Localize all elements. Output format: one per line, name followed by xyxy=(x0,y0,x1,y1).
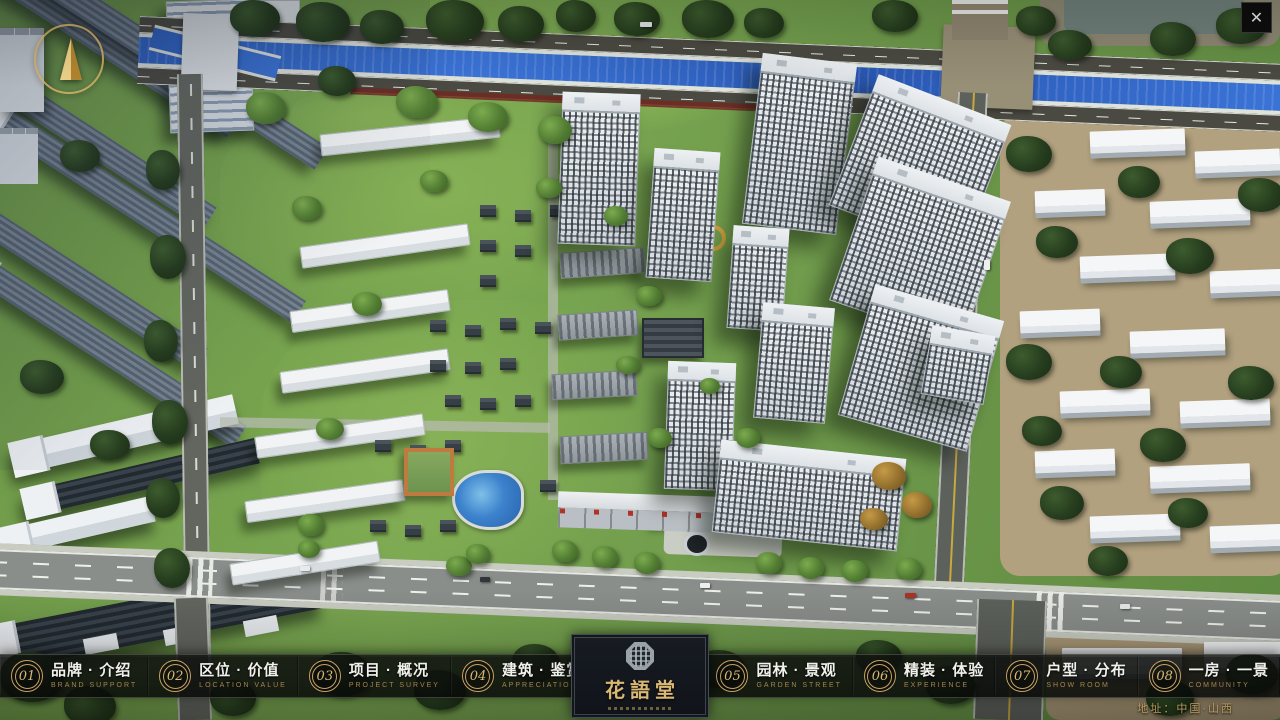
address-label: 地址：中国·山西 xyxy=(1137,700,1234,716)
tree-icon xyxy=(556,0,596,32)
apartment-slab xyxy=(1090,128,1186,153)
tree-icon xyxy=(616,356,640,374)
courtyard-house xyxy=(430,320,446,332)
nav-number-badge: 05 xyxy=(716,660,748,692)
courtyard-house xyxy=(540,480,556,492)
courtyard-house xyxy=(480,398,496,410)
car xyxy=(300,566,310,571)
nav-number: 03 xyxy=(312,664,337,689)
tree-icon xyxy=(744,8,784,38)
compass-north-icon xyxy=(34,24,104,94)
tree-icon xyxy=(1166,238,1214,274)
car xyxy=(1120,604,1130,609)
midrise-slab xyxy=(557,309,639,341)
apartment-slab xyxy=(1130,328,1226,353)
tree-icon xyxy=(552,540,578,562)
nav-number-badge: 02 xyxy=(159,660,191,692)
tree-icon xyxy=(318,66,356,96)
tree-icon xyxy=(352,292,382,316)
tree-icon xyxy=(1048,30,1092,60)
tree-icon xyxy=(902,492,932,518)
tree-icon xyxy=(298,540,320,558)
nav-number: 06 xyxy=(867,664,892,689)
courtyard-house xyxy=(465,325,481,337)
tree-icon xyxy=(842,560,868,582)
nav-number-badge: 06 xyxy=(864,660,896,692)
tree-icon xyxy=(872,462,906,490)
project-logo-name: 花語堂 xyxy=(600,674,680,703)
tree-icon xyxy=(154,548,190,588)
clubhouse-hall xyxy=(642,318,704,358)
nav-label-zh: 项目 · 概况 xyxy=(349,662,440,679)
nav-label-en: PROJECT SURVEY xyxy=(349,682,440,690)
courtyard-house xyxy=(480,205,496,217)
apartment-slab xyxy=(1090,513,1181,538)
logo-tagline-rule xyxy=(608,707,672,710)
nav-label-en: LOCATION VALUE xyxy=(199,682,287,690)
tree-icon xyxy=(1150,22,1196,56)
tree-icon xyxy=(682,0,734,38)
nav-number-badge: 03 xyxy=(309,660,341,692)
nav-item-interior-experience[interactable]: 06 精装 · 体验EXPERIENCE xyxy=(853,657,995,695)
tree-icon xyxy=(1238,178,1280,212)
nav-label-zh: 区位 · 价值 xyxy=(199,662,287,679)
tree-icon xyxy=(536,178,562,198)
tree-icon xyxy=(296,2,350,42)
seal-emblem-icon xyxy=(626,642,654,670)
nav-item-location-value[interactable]: 02 区位 · 价值LOCATION VALUE xyxy=(148,657,298,695)
tree-icon xyxy=(146,150,180,190)
logo-panel[interactable]: 花語堂 xyxy=(571,634,709,718)
courtyard-house xyxy=(535,322,551,334)
tree-icon xyxy=(736,428,760,448)
tree-icon xyxy=(150,235,186,279)
tree-icon xyxy=(1036,226,1078,258)
tree-icon xyxy=(468,102,508,132)
courtyard-house xyxy=(515,395,531,407)
tree-icon xyxy=(20,360,64,394)
courtyard-house xyxy=(430,360,446,372)
nav-number-badge: 08 xyxy=(1149,660,1181,692)
nav-label-en: GARDEN STREET xyxy=(756,682,842,690)
north-road xyxy=(952,0,1008,40)
car xyxy=(640,22,652,27)
nav-group-left: 01 品牌 · 介绍BRAND SUPPORT 02 区位 · 价值LOCATI… xyxy=(0,655,593,697)
tree-icon xyxy=(396,86,438,118)
nav-number-badge: 07 xyxy=(1006,660,1038,692)
nav-item-garden-landscape[interactable]: 05 园林 · 景观GARDEN STREET xyxy=(705,657,853,695)
nav-number: 08 xyxy=(1152,664,1177,689)
nav-label-zh: 品牌 · 介绍 xyxy=(51,662,137,679)
nav-label-zh: 一房 · 一景 xyxy=(1189,662,1269,679)
tree-icon xyxy=(1088,546,1128,576)
tree-icon xyxy=(426,0,484,42)
car xyxy=(700,583,710,588)
nav-number: 01 xyxy=(15,664,40,689)
tree-icon xyxy=(90,430,130,460)
tree-icon xyxy=(298,514,324,536)
nav-number: 05 xyxy=(720,664,745,689)
courtyard-house xyxy=(405,525,421,537)
courtyard-house xyxy=(480,275,496,287)
tree-icon xyxy=(144,320,178,362)
tree-icon xyxy=(538,116,572,144)
close-icon: ✕ xyxy=(1250,8,1263,28)
tree-icon xyxy=(636,286,662,306)
courtyard-house xyxy=(465,362,481,374)
pool xyxy=(452,470,524,530)
courtyard-house xyxy=(440,520,456,532)
masterplan-3d-scene[interactable] xyxy=(0,0,1280,720)
apartment-slab xyxy=(1180,398,1271,423)
nav-number: 02 xyxy=(163,664,188,689)
nav-number-badge: 01 xyxy=(11,660,43,692)
nav-item-room-view[interactable]: 08 一房 · 一景COMMUNITY xyxy=(1138,657,1280,695)
tree-icon xyxy=(1016,6,1056,36)
apartment-slab xyxy=(1020,309,1101,334)
tree-icon xyxy=(316,418,344,440)
tree-icon xyxy=(634,552,660,574)
tree-icon xyxy=(872,0,918,32)
apartment-slab xyxy=(1150,198,1251,223)
tree-icon xyxy=(466,544,490,564)
tree-icon xyxy=(1168,498,1208,528)
tree-icon xyxy=(1140,428,1186,462)
tower-building xyxy=(712,440,907,552)
tree-icon xyxy=(798,557,824,579)
nav-item-project-survey[interactable]: 03 项目 · 概况PROJECT SURVEY xyxy=(298,657,451,695)
inner-path xyxy=(548,120,558,500)
castle-building xyxy=(0,128,38,184)
courtyard-house xyxy=(445,395,461,407)
apartment-slab xyxy=(1210,269,1280,294)
nav-number: 07 xyxy=(1010,664,1035,689)
courtyard-house xyxy=(515,245,531,257)
apartment-slab xyxy=(1035,449,1116,474)
courtyard-house xyxy=(500,358,516,370)
apartment-slab xyxy=(1060,388,1151,413)
tree-icon xyxy=(604,206,628,226)
entry-fountain xyxy=(684,532,710,556)
nav-group-right: 05 园林 · 景观GARDEN STREET 06 精装 · 体验EXPERI… xyxy=(705,655,1280,697)
car xyxy=(984,260,990,270)
tree-icon xyxy=(146,478,180,518)
nav-item-floorplan-distribution[interactable]: 07 户型 · 分布SHOW ROOM xyxy=(995,657,1137,695)
tree-icon xyxy=(1228,366,1274,400)
tree-icon xyxy=(592,546,618,568)
tree-icon xyxy=(1006,136,1052,172)
apartment-slab xyxy=(1195,149,1280,174)
nav-label-zh: 户型 · 分布 xyxy=(1046,662,1126,679)
tree-icon xyxy=(896,558,922,580)
nav-label-en: BRAND SUPPORT xyxy=(51,682,137,690)
tree-icon xyxy=(152,400,188,444)
tree-icon xyxy=(292,196,322,220)
tree-icon xyxy=(614,2,660,36)
tree-icon xyxy=(60,140,100,172)
courtyard-house xyxy=(515,210,531,222)
tree-icon xyxy=(246,92,286,124)
car xyxy=(905,593,916,598)
courtyard-house xyxy=(370,520,386,532)
nav-label-en: COMMUNITY xyxy=(1189,682,1269,690)
tree-icon xyxy=(1006,344,1052,380)
tree-icon xyxy=(1100,356,1142,388)
tower-building xyxy=(920,325,995,405)
courtyard-house xyxy=(375,440,391,452)
crosswalk xyxy=(186,557,214,598)
nav-number: 04 xyxy=(465,664,490,689)
presentation-window: ✕ 01 品牌 · 介绍BRAND SUPPORT 02 区位 · 价值LOCA… xyxy=(0,0,1280,720)
nav-number-badge: 04 xyxy=(462,660,494,692)
tree-icon xyxy=(700,378,720,394)
tower-building xyxy=(557,92,640,247)
compass-needle xyxy=(71,38,82,80)
tree-icon xyxy=(230,0,280,36)
kindergarten xyxy=(404,448,454,496)
midrise-slab xyxy=(551,370,637,400)
tower-building xyxy=(646,148,721,282)
tree-icon xyxy=(1022,416,1062,446)
tree-icon xyxy=(1040,486,1084,520)
tree-icon xyxy=(648,428,672,448)
nav-item-brand-intro[interactable]: 01 品牌 · 介绍BRAND SUPPORT xyxy=(0,657,148,695)
tree-icon xyxy=(360,10,404,44)
courtyard-house xyxy=(480,240,496,252)
tree-icon xyxy=(756,552,782,574)
courtyard-house xyxy=(500,318,516,330)
tree-icon xyxy=(860,508,888,530)
compass-needle xyxy=(60,38,71,80)
tree-icon xyxy=(1118,166,1160,198)
tree-icon xyxy=(420,170,448,192)
close-button[interactable]: ✕ xyxy=(1241,2,1272,33)
nav-label-en: EXPERIENCE xyxy=(904,682,984,690)
nav-label-zh: 精装 · 体验 xyxy=(904,662,984,679)
midrise-slab xyxy=(559,432,648,465)
car xyxy=(480,577,490,582)
tower-building xyxy=(753,302,835,424)
apartment-slab xyxy=(1210,524,1280,549)
nav-label-en: SHOW ROOM xyxy=(1046,682,1126,690)
tree-icon xyxy=(498,6,544,42)
nav-label-zh: 园林 · 景观 xyxy=(756,662,842,679)
apartment-slab xyxy=(1150,463,1251,488)
apartment-slab xyxy=(1080,253,1176,278)
apartment-slab xyxy=(1035,189,1106,213)
